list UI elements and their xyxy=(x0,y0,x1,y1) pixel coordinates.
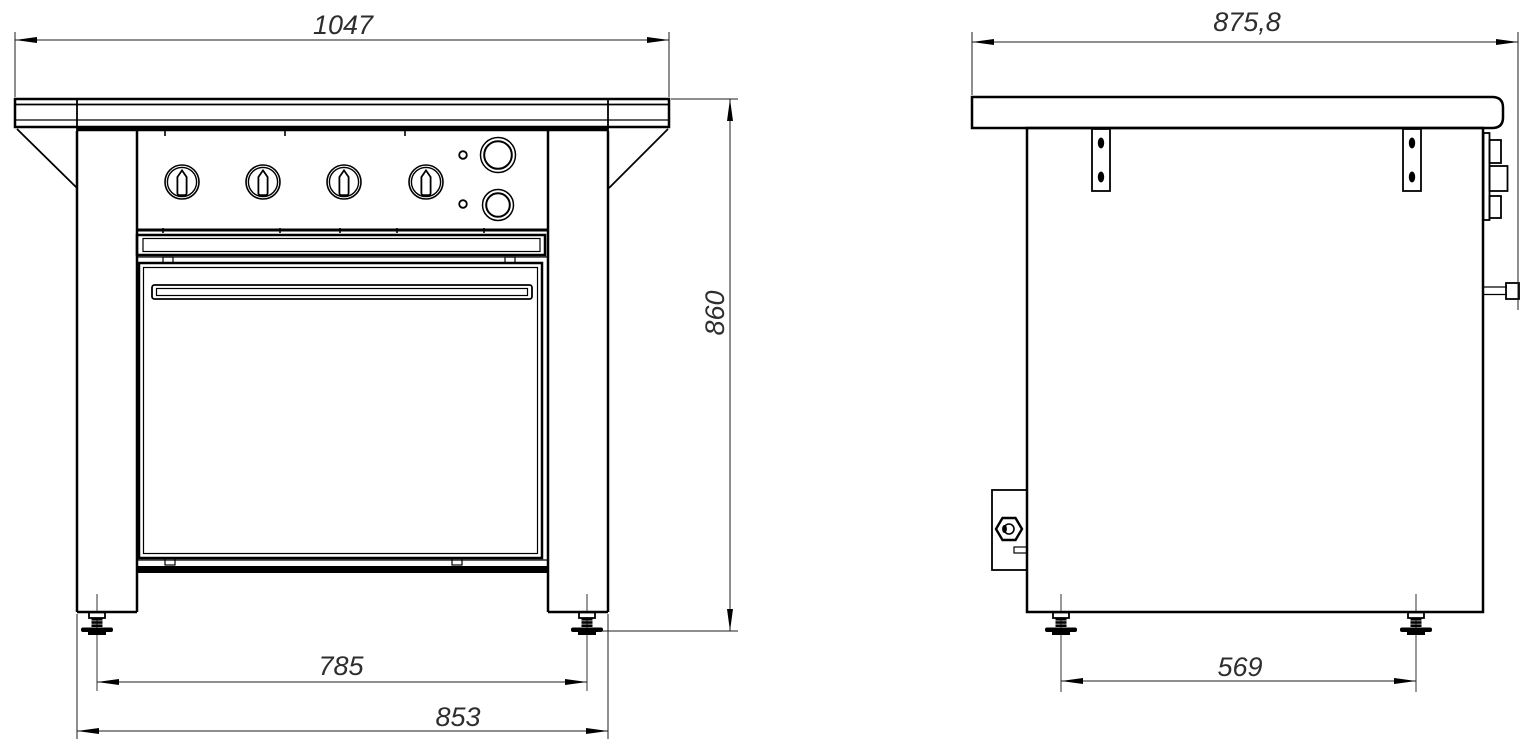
indicator-lamp-top xyxy=(459,151,467,159)
range-two-view-drawing: 1047 860 785 853 xyxy=(0,0,1533,751)
mounting-bracket-front xyxy=(1403,129,1421,191)
dim-label-875-8: 875,8 xyxy=(1213,7,1281,37)
left-gusset xyxy=(17,129,77,188)
technical-drawing-canvas: 1047 860 785 853 xyxy=(0,0,1533,751)
dim-label-785: 785 xyxy=(318,651,364,681)
dimension-feet-spacing-side: 569 xyxy=(1061,652,1416,684)
right-gusset xyxy=(609,129,668,188)
front-view: 1047 860 785 853 xyxy=(15,10,738,739)
countertop-side xyxy=(972,97,1503,128)
dim-label-853: 853 xyxy=(435,702,480,732)
side-view: 875,8 569 xyxy=(972,7,1519,692)
burner-knob-1 xyxy=(165,165,199,199)
knob-profile-stack xyxy=(1484,133,1508,220)
oven-door xyxy=(139,263,542,558)
base-bar xyxy=(137,566,548,573)
burner-knob-4 xyxy=(409,165,443,199)
countertop-front xyxy=(15,99,669,131)
burner-knob-2 xyxy=(246,165,280,199)
dimension-overall-depth: 875,8 xyxy=(972,7,1518,310)
front-left-foot xyxy=(81,613,113,636)
connection-box xyxy=(992,490,1027,570)
indicator-lamp-bottom xyxy=(459,200,467,208)
front-right-foot xyxy=(571,613,603,636)
dim-label-1047: 1047 xyxy=(313,10,374,40)
body-side xyxy=(1027,128,1483,612)
left-leg-column xyxy=(77,131,137,612)
mounting-bracket-rear xyxy=(1092,129,1110,191)
right-leg-column xyxy=(548,131,608,612)
oven-door-handle xyxy=(152,285,532,299)
burner-knob-3 xyxy=(327,165,361,199)
dim-label-860: 860 xyxy=(700,290,730,335)
side-rear-foot xyxy=(1045,613,1077,636)
control-panel xyxy=(137,131,548,233)
oven-thermostat-knob xyxy=(481,138,516,173)
vent-strip xyxy=(137,235,545,255)
dimension-overall-width: 1047 xyxy=(15,10,669,97)
oven-mode-knob xyxy=(483,190,514,221)
handle-profile xyxy=(1484,283,1519,299)
side-front-foot xyxy=(1400,613,1432,636)
dim-label-569: 569 xyxy=(1217,652,1262,682)
dimension-feet-spacing-front: 785 xyxy=(97,651,587,685)
cable-gland-nut xyxy=(996,518,1022,540)
